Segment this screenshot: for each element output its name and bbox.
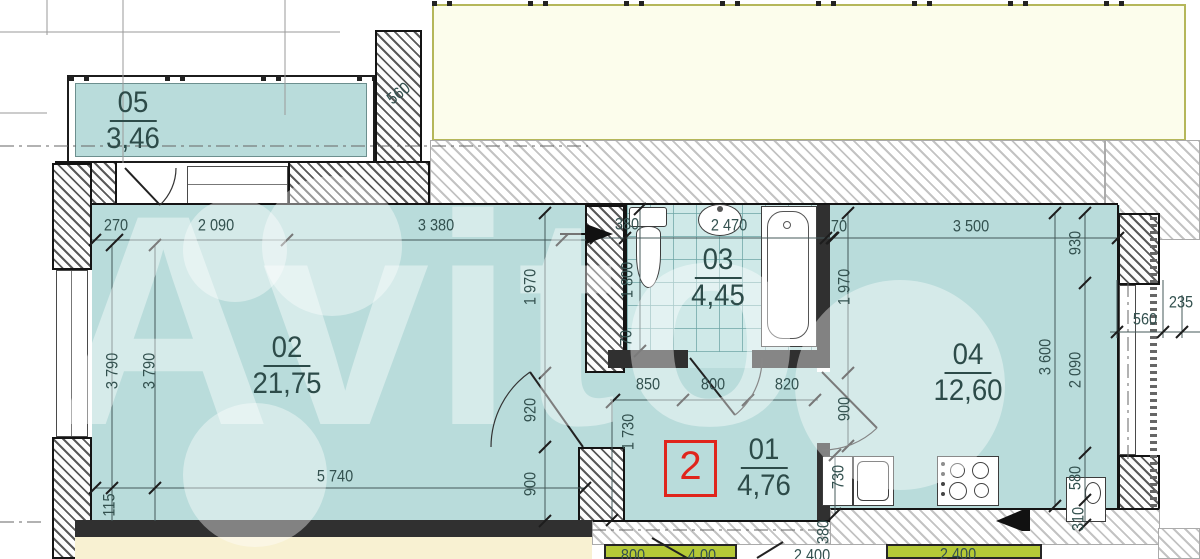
- dimension-label: 3 380: [418, 217, 454, 236]
- room-label-04: 0412,60: [933, 339, 1002, 407]
- room-area: 4,76: [737, 469, 791, 502]
- dimension-label: 560: [1133, 311, 1157, 330]
- room-area: 4,45: [691, 279, 745, 312]
- room-number: 03: [694, 244, 741, 279]
- room-label-03: 034,45: [691, 244, 745, 312]
- dimension-label: 820: [775, 376, 799, 395]
- dimension-label: 1 970: [522, 269, 541, 305]
- dimension-label: 3 790: [104, 353, 123, 389]
- dimension-label: 2 400: [940, 546, 976, 559]
- dimension-label: 310: [1070, 507, 1089, 531]
- floor-plan: Avito 2702 0903 3803802 470703 500850800…: [0, 0, 1200, 559]
- dimension-label: 2 470: [711, 217, 747, 236]
- room-number: 01: [740, 434, 787, 469]
- dimension-label: 800: [621, 547, 645, 559]
- grid-lines: [0, 0, 340, 163]
- dimension-label: 730: [830, 465, 849, 489]
- dimension-label: 5 740: [317, 468, 353, 487]
- dimension-label: 4,00: [688, 547, 716, 559]
- dimension-label: 2 400: [794, 547, 830, 559]
- section-marker-icon: [996, 510, 1030, 531]
- dimension-label: 380: [815, 520, 834, 544]
- unit-number: 2: [679, 444, 701, 488]
- dimension-label: 2 090: [198, 217, 234, 236]
- dimension-label: 920: [522, 398, 541, 422]
- watermark-text: Avito: [55, 160, 804, 480]
- dimension-label: 70: [618, 330, 637, 346]
- dimension-label: 1 800: [619, 262, 638, 298]
- dimension-label: 900: [836, 397, 855, 421]
- room-number: 02: [263, 332, 310, 367]
- dimension-label: 900: [522, 472, 541, 496]
- dimension-label: 270: [104, 217, 128, 236]
- dimension-label: 930: [1067, 231, 1086, 255]
- room-area: 12,60: [933, 374, 1002, 407]
- room-area: 21,75: [252, 367, 321, 400]
- dimension-label: 3 500: [953, 218, 989, 237]
- dimension-label: 1 730: [620, 414, 639, 450]
- dimension-label: 380: [615, 216, 639, 235]
- dimension-label: 115: [101, 493, 120, 516]
- room-number: 04: [944, 339, 991, 374]
- dimension-label: 3 790: [141, 353, 160, 389]
- dimension-label: 850: [636, 376, 660, 395]
- dimension-label: 70: [831, 218, 847, 237]
- room-label-05: 053,46: [106, 87, 160, 155]
- dimension-label: 2 090: [1067, 352, 1086, 388]
- dimension-label: 3 600: [1037, 339, 1056, 375]
- dimension-label: 235: [1169, 294, 1193, 313]
- dimension-label: 1 970: [836, 269, 855, 305]
- dimension-label: 580: [1067, 466, 1086, 490]
- room-area: 3,46: [106, 122, 160, 155]
- room-number: 05: [109, 87, 156, 122]
- unit-number-marker: 2: [664, 440, 717, 497]
- dimension-label: 800: [701, 376, 725, 395]
- room-label-01: 014,76: [737, 434, 791, 502]
- room-label-02: 0221,75: [252, 332, 321, 400]
